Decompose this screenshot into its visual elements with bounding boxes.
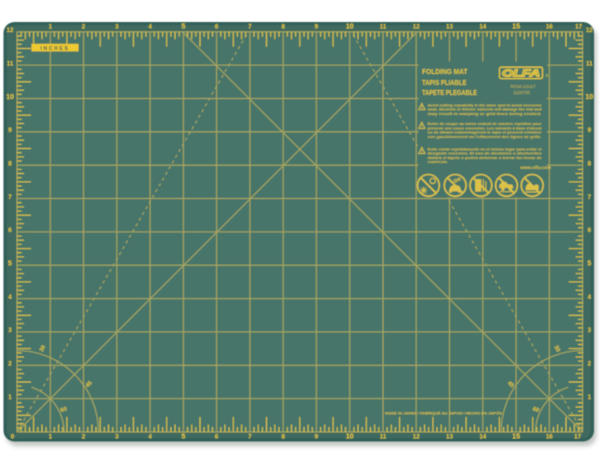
svg-text:1: 1 <box>49 24 53 31</box>
svg-text:9: 9 <box>588 127 592 134</box>
svg-text:12: 12 <box>7 27 14 34</box>
svg-text:11: 11 <box>7 60 14 67</box>
svg-text:0: 0 <box>11 434 15 441</box>
svg-text:10: 10 <box>6 94 14 101</box>
svg-text:7: 7 <box>248 434 252 441</box>
svg-text:17: 17 <box>574 434 581 441</box>
svg-text:8: 8 <box>588 161 592 168</box>
svg-text:14: 14 <box>479 24 486 31</box>
svg-text:MADE IN JAPAN / FABRIQUÉ AU JA: MADE IN JAPAN / FABRIQUÉ AU JAPON / HECH… <box>385 410 503 415</box>
svg-text:4: 4 <box>148 24 152 31</box>
svg-text:4: 4 <box>8 294 12 301</box>
svg-text:5: 5 <box>8 261 12 268</box>
svg-text:www.olfa.com: www.olfa.com <box>519 165 551 170</box>
svg-text:1: 1 <box>8 394 12 401</box>
svg-text:12: 12 <box>586 27 593 34</box>
svg-text:1119736: 1119736 <box>513 90 530 95</box>
svg-text:TAPIS PLIABLE: TAPIS PLIABLE <box>422 78 467 87</box>
svg-text:11: 11 <box>380 24 387 31</box>
svg-text:7: 7 <box>248 24 252 31</box>
svg-text:5: 5 <box>587 261 591 268</box>
svg-text:3: 3 <box>8 327 12 334</box>
svg-text:6: 6 <box>215 24 219 31</box>
svg-text:12: 12 <box>413 24 420 31</box>
svg-text:3: 3 <box>588 327 592 334</box>
svg-text:3: 3 <box>115 434 119 441</box>
svg-text:9: 9 <box>315 434 319 441</box>
svg-text:may result in warping or grid: may result in warping or grid lines bein… <box>428 112 542 116</box>
svg-text:7: 7 <box>588 194 592 201</box>
svg-text:5: 5 <box>181 432 185 441</box>
svg-text:1: 1 <box>588 394 592 401</box>
svg-text:15: 15 <box>512 432 520 441</box>
svg-text:7: 7 <box>8 194 12 201</box>
svg-text:13: 13 <box>446 24 453 31</box>
svg-text:TAPETE PLEGABLE: TAPETE PLEGABLE <box>422 88 477 97</box>
svg-text:14: 14 <box>479 434 486 441</box>
svg-text:8: 8 <box>281 24 285 31</box>
svg-text:6: 6 <box>8 227 12 234</box>
svg-text:2: 2 <box>82 434 86 441</box>
svg-text:2: 2 <box>588 361 592 368</box>
svg-text:15: 15 <box>512 22 520 31</box>
svg-text:INCHES: INCHES <box>40 46 69 52</box>
svg-text:8: 8 <box>281 434 285 441</box>
svg-text:16: 16 <box>546 434 553 441</box>
svg-text:11: 11 <box>586 60 593 67</box>
svg-text:1: 1 <box>49 434 53 441</box>
svg-text:12: 12 <box>413 434 420 441</box>
svg-text:6: 6 <box>215 434 219 441</box>
svg-text:9: 9 <box>315 24 319 31</box>
svg-text:17: 17 <box>575 24 582 31</box>
svg-text:11: 11 <box>380 434 387 441</box>
svg-text:3: 3 <box>115 24 119 31</box>
svg-text:13: 13 <box>446 434 453 441</box>
svg-text:4: 4 <box>588 294 592 301</box>
svg-text:6: 6 <box>588 227 592 234</box>
svg-text:8: 8 <box>8 161 12 168</box>
svg-text:9: 9 <box>8 127 12 134</box>
svg-text:OLFA: OLFA <box>502 69 540 80</box>
svg-text:FOLDING MAT: FOLDING MAT <box>422 67 468 76</box>
svg-text:2: 2 <box>82 24 86 31</box>
svg-text:4: 4 <box>148 434 152 441</box>
svg-text:cuadrícula.: cuadrícula. <box>428 160 448 164</box>
svg-text:16: 16 <box>546 24 553 31</box>
svg-text:5: 5 <box>181 22 185 31</box>
svg-text:10: 10 <box>585 94 593 101</box>
svg-text:2: 2 <box>8 361 12 368</box>
svg-text:10: 10 <box>346 432 354 441</box>
svg-text:RCM-12x17: RCM-12x17 <box>511 84 537 89</box>
svg-text:10: 10 <box>346 22 354 31</box>
svg-text:son gauchissement ou l'effacem: son gauchissement ou l'effacement des li… <box>428 135 542 139</box>
